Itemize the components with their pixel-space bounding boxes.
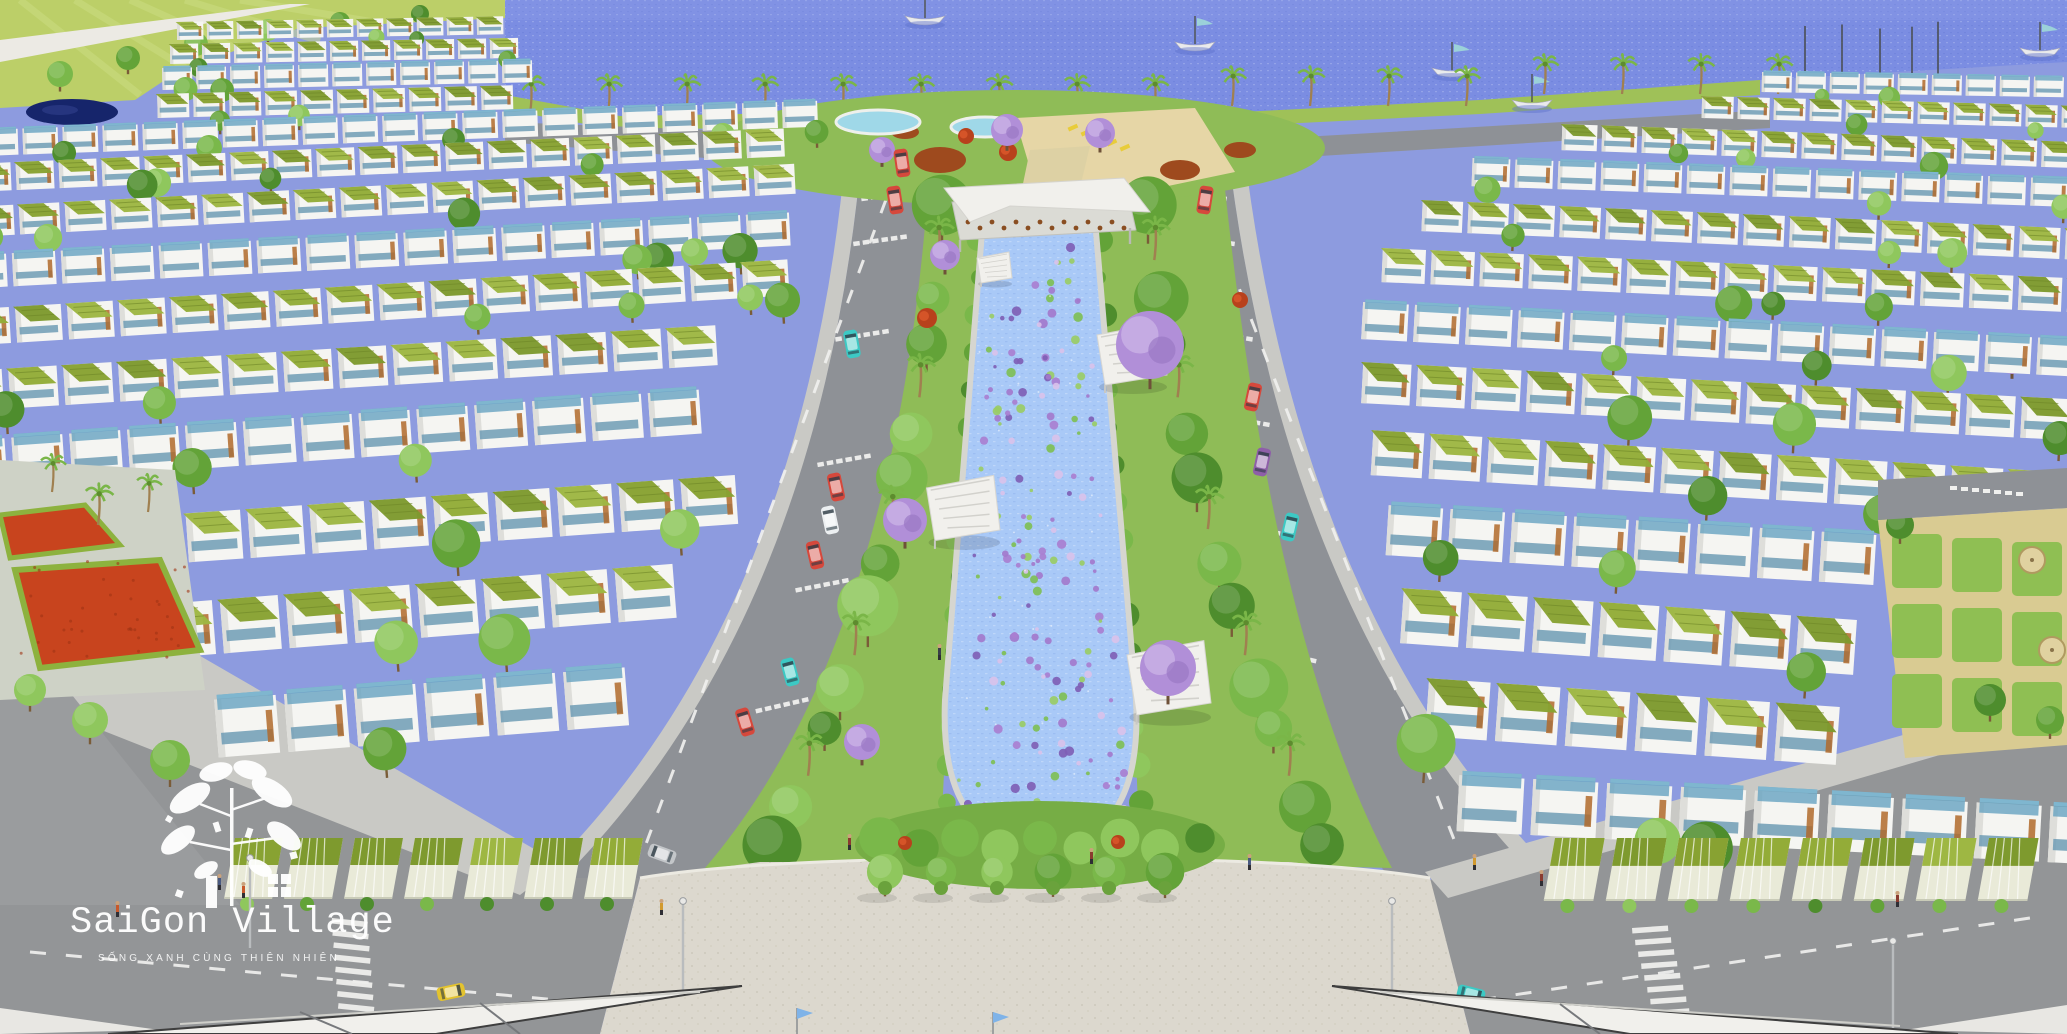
pedestrian — [1248, 854, 1252, 870]
pedestrian — [1896, 891, 1900, 907]
pedestrian — [1473, 854, 1477, 870]
pedestrian — [116, 901, 120, 917]
red-flower-bush — [1232, 292, 1248, 308]
red-flower-bush — [917, 308, 937, 328]
pedestrian — [660, 899, 664, 915]
red-flower-bush — [898, 836, 912, 850]
pedestrian — [848, 834, 852, 850]
red-flower-bush — [1111, 835, 1125, 849]
right-formal-park — [1878, 468, 2067, 758]
sail-pavilion — [927, 475, 1001, 550]
red-flower-bush — [958, 128, 974, 144]
tree — [1877, 240, 1901, 268]
pedestrian — [1540, 870, 1544, 886]
tree — [2027, 122, 2044, 142]
pedestrian — [938, 644, 942, 660]
pedestrian — [218, 874, 222, 890]
sail-pavilion — [977, 252, 1012, 288]
pedestrian — [242, 882, 246, 898]
pedestrian — [1090, 848, 1094, 864]
masterplan-render — [0, 0, 2067, 1034]
tree — [1864, 292, 1894, 326]
tree — [1866, 191, 1891, 221]
render-canvas: SaiGon Village SỐNG XANH CÙNG THIÊN NHIÊ… — [0, 0, 2067, 1034]
